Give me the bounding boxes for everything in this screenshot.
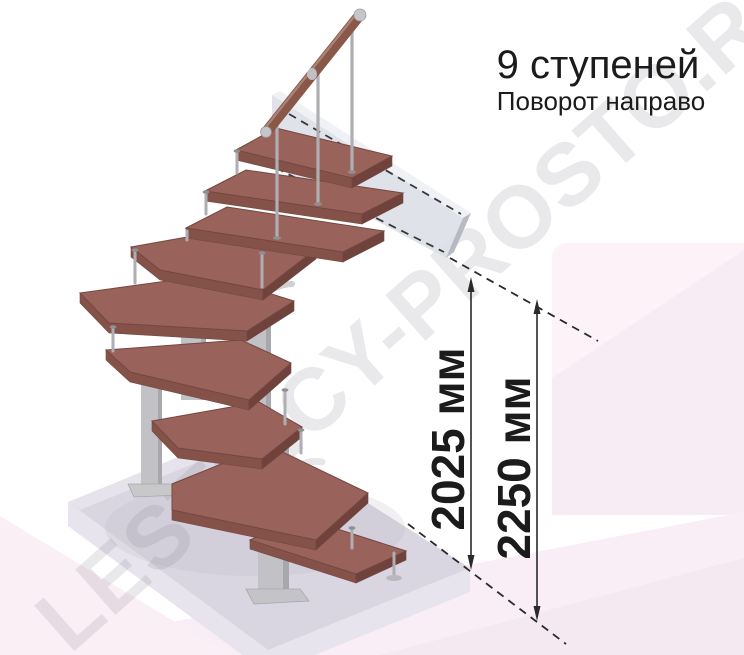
dimension-label-2250: 2250 мм xyxy=(488,376,540,559)
diagram-subtitle: Поворот направо xyxy=(497,86,705,116)
handrail-ferrule xyxy=(307,68,317,80)
stair-diagram-canvas: LESTNICY-PROSTO.RU xyxy=(0,0,744,655)
diagram-title: 9 ступеней xyxy=(497,43,700,87)
column-base-plate xyxy=(246,589,309,604)
dimension-label-2025: 2025 мм xyxy=(422,347,474,530)
leg-foot xyxy=(386,575,402,581)
handrail-bottom-cap xyxy=(261,127,272,138)
handrail-top-cap xyxy=(354,9,366,21)
staircase-illustration: LESTNICY-PROSTO.RU xyxy=(0,0,744,655)
